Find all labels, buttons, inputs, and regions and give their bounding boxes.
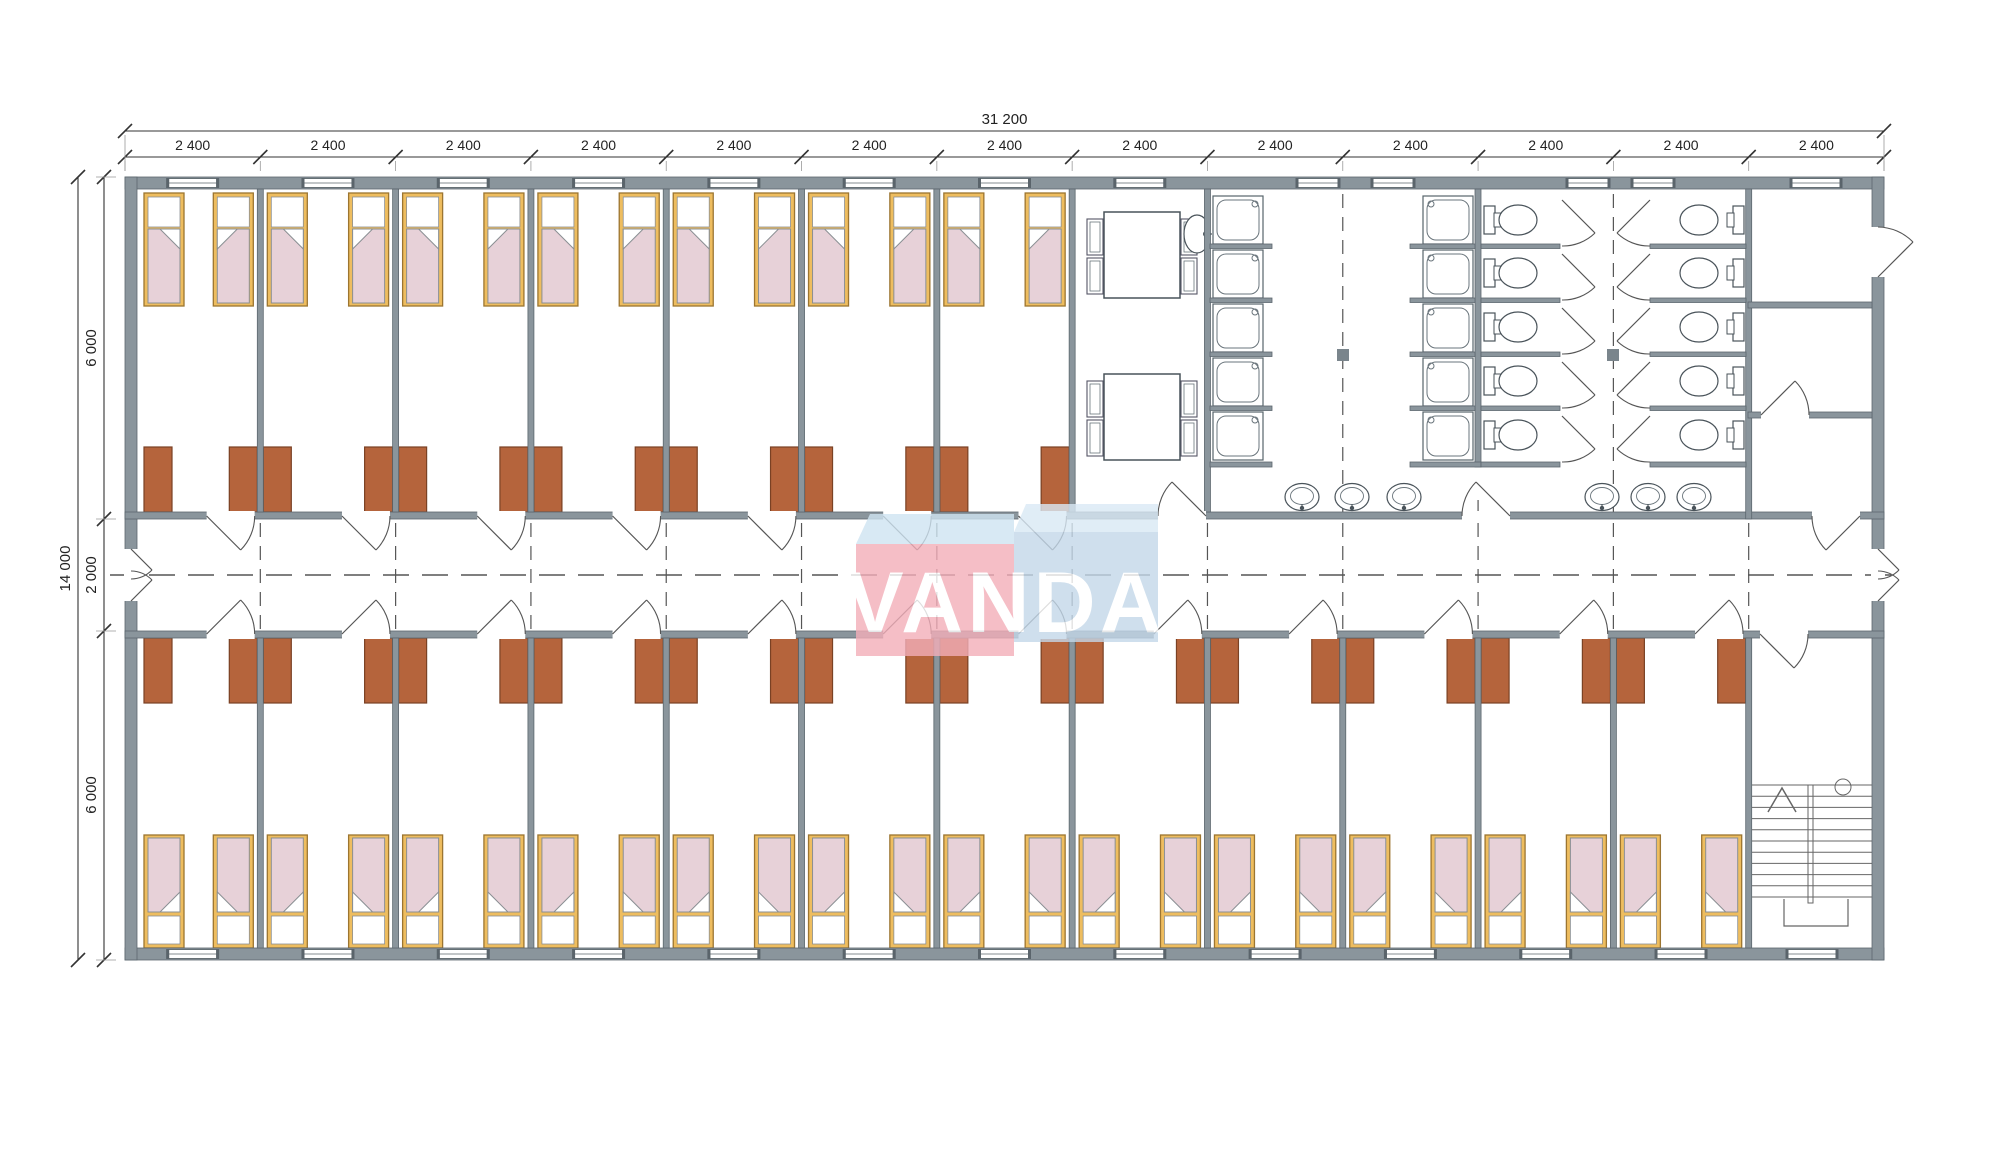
toilet bbox=[1680, 420, 1744, 450]
floor-plan-canvas: 31 2002 4002 4002 4002 4002 4002 4002 40… bbox=[0, 0, 2000, 1164]
bed bbox=[538, 193, 578, 306]
window bbox=[1113, 949, 1166, 959]
door bbox=[477, 516, 525, 550]
bed bbox=[890, 193, 930, 306]
window bbox=[301, 178, 354, 188]
chair bbox=[1087, 381, 1103, 417]
washbasin bbox=[1387, 484, 1421, 512]
door bbox=[1562, 416, 1595, 462]
toilet bbox=[1680, 312, 1744, 342]
wardrobe bbox=[771, 638, 799, 703]
bed bbox=[213, 193, 253, 306]
bed bbox=[619, 835, 659, 948]
door bbox=[1617, 200, 1650, 246]
door bbox=[477, 600, 525, 634]
dimension-label: 2 400 bbox=[1799, 137, 1834, 153]
door bbox=[1289, 600, 1337, 634]
bed bbox=[1214, 835, 1254, 948]
door bbox=[748, 516, 796, 550]
bed bbox=[349, 193, 389, 306]
washbasin bbox=[1285, 484, 1319, 512]
dimension-label: 2 400 bbox=[1664, 137, 1699, 153]
shower-tray bbox=[1213, 304, 1263, 352]
washbasin bbox=[1335, 484, 1369, 512]
wardrobe bbox=[144, 447, 172, 512]
window bbox=[1519, 949, 1572, 959]
window bbox=[1113, 178, 1166, 188]
wardrobe bbox=[771, 447, 799, 512]
shower-tray bbox=[1423, 412, 1473, 460]
window bbox=[1296, 178, 1341, 188]
door bbox=[1812, 516, 1860, 550]
dimension-label: 6 000 bbox=[83, 329, 100, 367]
window bbox=[1249, 949, 1302, 959]
dimension-label: 2 400 bbox=[310, 137, 345, 153]
bed bbox=[1025, 193, 1065, 306]
wardrobe bbox=[1041, 447, 1069, 512]
toilet bbox=[1484, 420, 1537, 450]
dimension-label: 2 400 bbox=[581, 137, 616, 153]
bed bbox=[1296, 835, 1336, 948]
door bbox=[1424, 600, 1472, 634]
door bbox=[342, 600, 390, 634]
washbasin bbox=[1631, 484, 1665, 512]
column-marker bbox=[1337, 349, 1349, 361]
wardrobe bbox=[365, 638, 393, 703]
bed bbox=[755, 835, 795, 948]
bed bbox=[403, 835, 443, 948]
wardrobe bbox=[669, 638, 697, 703]
bed bbox=[1025, 835, 1065, 948]
bed bbox=[890, 835, 930, 948]
bed bbox=[619, 193, 659, 306]
wardrobe bbox=[263, 447, 291, 512]
door bbox=[207, 600, 255, 634]
bed bbox=[1566, 835, 1606, 948]
window bbox=[1566, 178, 1611, 188]
column-marker bbox=[1607, 349, 1619, 361]
chair bbox=[1181, 258, 1197, 294]
door bbox=[1462, 482, 1510, 516]
wardrobe bbox=[229, 638, 257, 703]
wardrobe bbox=[1447, 638, 1475, 703]
shower-tray bbox=[1423, 196, 1473, 244]
shower-tray bbox=[1213, 358, 1263, 406]
dimension-label: 14 000 bbox=[57, 546, 74, 592]
toilet bbox=[1484, 205, 1537, 235]
dimension-label: 2 400 bbox=[987, 137, 1022, 153]
wardrobe bbox=[399, 638, 427, 703]
wardrobe bbox=[1616, 638, 1644, 703]
wardrobe bbox=[500, 638, 528, 703]
dimension-label: 2 000 bbox=[83, 556, 100, 594]
chair bbox=[1181, 420, 1197, 456]
bed bbox=[673, 835, 713, 948]
door bbox=[1760, 634, 1808, 668]
wardrobe bbox=[1346, 638, 1374, 703]
toilet bbox=[1484, 366, 1537, 396]
door bbox=[1562, 308, 1595, 354]
bed bbox=[349, 835, 389, 948]
dining-table bbox=[1104, 374, 1180, 460]
door bbox=[1158, 482, 1206, 516]
door bbox=[1617, 254, 1650, 300]
window bbox=[843, 178, 896, 188]
wardrobe bbox=[263, 638, 291, 703]
wardrobe bbox=[906, 447, 934, 512]
bed bbox=[213, 835, 253, 948]
wardrobe bbox=[399, 447, 427, 512]
corridor-washbasins bbox=[1285, 484, 1711, 512]
dimension-label: 2 400 bbox=[1528, 137, 1563, 153]
bed bbox=[1160, 835, 1200, 948]
window bbox=[1384, 949, 1437, 959]
toilet bbox=[1680, 366, 1744, 396]
wardrobe bbox=[805, 638, 833, 703]
washbasin bbox=[1585, 484, 1619, 512]
chair bbox=[1087, 258, 1103, 294]
wardrobe bbox=[365, 447, 393, 512]
wardrobe bbox=[1481, 638, 1509, 703]
door bbox=[1617, 416, 1650, 462]
bed bbox=[403, 193, 443, 306]
wardrobe bbox=[805, 447, 833, 512]
bed bbox=[944, 835, 984, 948]
dimension-label: 2 400 bbox=[716, 137, 751, 153]
vanda-logo-text: VANDA bbox=[846, 555, 1165, 651]
door bbox=[1617, 308, 1650, 354]
wardrobe bbox=[940, 447, 968, 512]
bed bbox=[484, 193, 524, 306]
wardrobe bbox=[1312, 638, 1340, 703]
wardrobe bbox=[1176, 638, 1204, 703]
bed bbox=[809, 193, 849, 306]
window bbox=[1655, 949, 1708, 959]
bed bbox=[1350, 835, 1390, 948]
wardrobe bbox=[1210, 638, 1238, 703]
canteen bbox=[1087, 212, 1197, 460]
bed bbox=[673, 193, 713, 306]
shower-tray bbox=[1423, 358, 1473, 406]
washbasin bbox=[1677, 484, 1711, 512]
wardrobe bbox=[1582, 638, 1610, 703]
bed bbox=[1620, 835, 1660, 948]
wardrobe bbox=[1718, 638, 1746, 703]
bed bbox=[1702, 835, 1742, 948]
window bbox=[707, 178, 760, 188]
window bbox=[1786, 949, 1839, 959]
door bbox=[1562, 200, 1595, 246]
window bbox=[978, 178, 1031, 188]
window bbox=[843, 949, 896, 959]
door bbox=[1617, 362, 1650, 408]
door bbox=[1562, 254, 1595, 300]
door bbox=[1695, 600, 1743, 634]
bed bbox=[267, 193, 307, 306]
staircase bbox=[1752, 779, 1872, 926]
door bbox=[1560, 600, 1608, 634]
chair bbox=[1087, 219, 1103, 255]
bed bbox=[809, 835, 849, 948]
wardrobe bbox=[635, 447, 663, 512]
shower-tray bbox=[1213, 412, 1263, 460]
toilet bbox=[1484, 312, 1537, 342]
wardrobe bbox=[229, 447, 257, 512]
toilet bbox=[1484, 258, 1537, 288]
bed bbox=[1431, 835, 1471, 948]
toilets bbox=[1484, 205, 1744, 450]
wardrobe bbox=[534, 638, 562, 703]
dimension-label: 2 400 bbox=[175, 137, 210, 153]
window bbox=[166, 178, 219, 188]
wardrobe bbox=[500, 447, 528, 512]
window bbox=[437, 178, 490, 188]
bed bbox=[944, 193, 984, 306]
shower-tray bbox=[1423, 250, 1473, 298]
dining-table bbox=[1104, 212, 1180, 298]
bed bbox=[267, 835, 307, 948]
wardrobe bbox=[635, 638, 663, 703]
bed bbox=[755, 193, 795, 306]
bed bbox=[1485, 835, 1525, 948]
dimension-label: 2 400 bbox=[852, 137, 887, 153]
chair bbox=[1181, 381, 1197, 417]
window bbox=[1790, 178, 1843, 188]
dimension-label: 31 200 bbox=[982, 111, 1028, 128]
wardrobe bbox=[669, 447, 697, 512]
shower-tray bbox=[1213, 196, 1263, 244]
chair bbox=[1087, 420, 1103, 456]
window bbox=[1371, 178, 1416, 188]
window bbox=[437, 949, 490, 959]
toilet bbox=[1680, 205, 1744, 235]
dimension-label: 2 400 bbox=[446, 137, 481, 153]
wardrobe bbox=[144, 638, 172, 703]
door bbox=[207, 516, 255, 550]
dimension-label: 2 400 bbox=[1393, 137, 1428, 153]
door bbox=[748, 600, 796, 634]
dimension-label: 6 000 bbox=[83, 776, 100, 814]
wardrobe bbox=[534, 447, 562, 512]
bed bbox=[484, 835, 524, 948]
window bbox=[301, 949, 354, 959]
showers bbox=[1213, 196, 1473, 460]
dimension-label: 2 400 bbox=[1258, 137, 1293, 153]
bed bbox=[1079, 835, 1119, 948]
shower-tray bbox=[1423, 304, 1473, 352]
window bbox=[978, 949, 1031, 959]
shower-tray bbox=[1213, 250, 1263, 298]
floor-plan-svg: 31 2002 4002 4002 4002 4002 4002 4002 40… bbox=[0, 0, 2000, 1164]
bed bbox=[538, 835, 578, 948]
door bbox=[1562, 362, 1595, 408]
door bbox=[613, 600, 661, 634]
window bbox=[572, 949, 625, 959]
door bbox=[613, 516, 661, 550]
toilet bbox=[1680, 258, 1744, 288]
bed bbox=[144, 193, 184, 306]
vanda-watermark: VANDA bbox=[846, 504, 1165, 656]
window bbox=[1631, 178, 1676, 188]
window bbox=[572, 178, 625, 188]
door bbox=[1761, 381, 1809, 415]
door bbox=[342, 516, 390, 550]
window bbox=[166, 949, 219, 959]
bed bbox=[144, 835, 184, 948]
dimension-label: 2 400 bbox=[1122, 137, 1157, 153]
window bbox=[707, 949, 760, 959]
